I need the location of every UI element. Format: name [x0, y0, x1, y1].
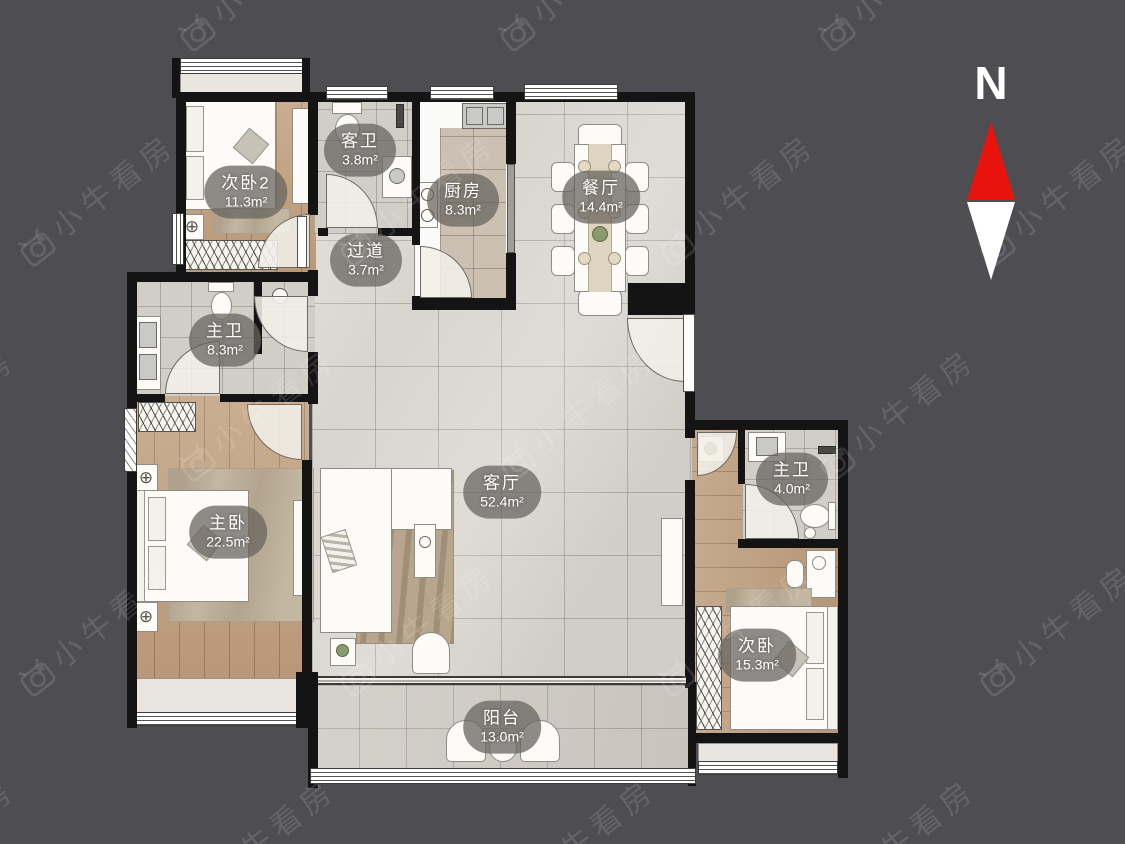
window-bedroom2-left	[172, 213, 184, 265]
room-area: 52.4m²	[480, 494, 524, 512]
watermark-item: 小牛看房	[807, 766, 985, 844]
target-glyph: ⊕	[139, 468, 153, 488]
watermark-item: 小牛看房	[967, 551, 1125, 703]
nightstand: ⊕	[134, 464, 158, 492]
window-master-left	[124, 408, 137, 472]
watermark-item: 小牛看房	[167, 0, 345, 58]
plate	[608, 252, 621, 265]
camera-logo-icon	[12, 223, 63, 274]
table-decor	[419, 536, 431, 548]
door-leaf-entry	[683, 314, 695, 392]
floorplan-screenshot: ⊕ ⊕ ⊕	[0, 0, 1125, 844]
watermark-item: 小牛看房	[0, 336, 24, 488]
wall-segment	[127, 272, 137, 728]
room-label-bedroom2: 次卧2 11.3m²	[204, 166, 287, 219]
wall-segment	[302, 58, 310, 98]
master-bed-pillow	[148, 546, 166, 590]
door-leaf-bedroom2	[297, 216, 307, 268]
plant	[336, 644, 349, 657]
room-name: 次卧	[735, 636, 779, 657]
watermark-item: 小牛看房	[0, 0, 24, 58]
room-name: 厨房	[444, 181, 482, 202]
wall-segment	[838, 420, 848, 778]
watermark-text: 小牛看房	[1001, 551, 1125, 677]
wall-segment	[172, 58, 180, 98]
room-area: 8.3m²	[206, 342, 244, 360]
room-label-guest-bath: 客卫 3.8m²	[324, 124, 396, 177]
dining-chair	[551, 246, 575, 276]
bed-right-headboard	[827, 606, 838, 730]
watermark-item: 小牛看房	[487, 0, 665, 58]
watermark-text: 小牛看房	[841, 766, 985, 844]
room-area: 13.0m²	[480, 729, 524, 747]
wall-segment	[685, 92, 695, 283]
vanity-sink	[139, 354, 157, 380]
watermark-text: 小牛看房	[0, 766, 24, 844]
bay-window-sill-master	[135, 678, 297, 714]
room-name: 客厅	[480, 473, 524, 494]
watermark-text: 小牛看房	[681, 121, 825, 247]
wall-segment	[220, 394, 312, 402]
coffee-table	[414, 524, 436, 578]
camera-logo-icon	[972, 653, 1023, 704]
room-label-dining: 餐厅 14.4m²	[562, 171, 640, 224]
compass-label: N	[951, 60, 1031, 106]
shower-fixture	[396, 104, 404, 128]
entry-cabinet	[661, 518, 683, 606]
room-label-living: 客厅 52.4m²	[463, 466, 541, 519]
master-dresser	[138, 402, 196, 432]
window-dining	[524, 84, 618, 100]
wall-segment	[318, 228, 328, 236]
toilet-bowl	[800, 504, 830, 528]
dining-chair	[578, 290, 622, 316]
bay-window-glass-bedroom2	[180, 58, 304, 74]
room-name: 过道	[347, 241, 385, 262]
wall-segment	[688, 733, 840, 743]
dining-chair	[625, 246, 649, 276]
master-bed-pillow	[148, 497, 166, 541]
camera-logo-icon	[12, 653, 63, 704]
wall-segment	[412, 298, 516, 310]
toilet-tank	[208, 282, 234, 292]
wall-segment	[176, 92, 318, 102]
room-name: 主卫	[773, 460, 811, 481]
centerpiece-plant	[592, 226, 608, 242]
target-glyph: ⊕	[139, 607, 153, 627]
room-name: 主卫	[206, 321, 244, 342]
wall-segment	[685, 388, 695, 438]
bed2-pillow	[186, 106, 204, 152]
bed2-pillow	[186, 156, 204, 200]
room-label-master-bedroom: 主卧 22.5m²	[189, 506, 267, 559]
watermark-text: 小牛看房	[41, 121, 185, 247]
watermark-item: 小牛看房	[7, 121, 185, 273]
wall-segment	[506, 92, 516, 164]
watermark-text: 小牛看房	[201, 0, 345, 32]
kitchen-sink-bowl	[466, 107, 483, 125]
watermark-text: 小牛看房	[841, 336, 985, 462]
guest-bath-sink	[389, 168, 405, 184]
toilet-tank	[332, 102, 362, 114]
room-label-kitchen: 厨房 8.3m²	[427, 174, 499, 227]
room-name: 客卫	[341, 131, 379, 152]
watermark-item: 小牛看房	[0, 766, 24, 844]
room-area: 4.0m²	[773, 481, 811, 499]
room-area: 14.4m²	[579, 199, 623, 217]
room-area: 3.7m²	[347, 262, 385, 280]
bed-right-pillow	[806, 668, 824, 720]
wall-segment	[506, 253, 516, 310]
desk-lamp	[812, 556, 826, 570]
room-label-master-bath-left: 主卫 8.3m²	[189, 314, 261, 367]
wall-segment	[308, 92, 318, 215]
balcony-railing-window	[310, 768, 696, 784]
room-label-master-bath-right: 主卫 4.0m²	[756, 453, 828, 506]
compass-north: N	[951, 60, 1031, 284]
wall-segment	[127, 394, 165, 402]
camera-logo-icon	[492, 8, 543, 59]
compass-arrow-icon	[965, 118, 1017, 284]
bay-window-glass-bedroom-right	[698, 761, 838, 775]
balcony-sliding-door	[318, 676, 686, 685]
watermark-item: 小牛看房	[807, 0, 985, 58]
wall-segment	[302, 460, 312, 682]
vanity-sink	[139, 322, 157, 348]
kitchen-sliding-door	[507, 164, 515, 253]
wall-segment	[695, 420, 845, 430]
wall-segment	[296, 672, 308, 728]
room-area: 3.8m²	[341, 152, 379, 170]
kitchen-sink	[462, 103, 508, 129]
target-glyph: ⊕	[185, 217, 199, 237]
lounge-chair	[412, 632, 450, 674]
desk-chair	[786, 560, 804, 588]
floor-drain	[804, 527, 816, 539]
bay-window-glass-master	[135, 712, 297, 726]
room-area: 15.3m²	[735, 657, 779, 675]
watermark-text: 小牛看房	[0, 336, 24, 462]
camera-logo-icon	[172, 8, 223, 59]
wall-segment	[412, 92, 420, 245]
wall-segment	[738, 539, 845, 548]
window-kitchen	[430, 86, 494, 100]
nightstand: ⊕	[134, 602, 158, 632]
watermark-text: 小牛看房	[521, 0, 665, 32]
room-name: 次卧2	[221, 173, 270, 194]
bay-window-sill-bedroom-right	[698, 743, 838, 763]
watermark-text: 小牛看房	[0, 0, 24, 32]
room-name: 主卧	[206, 513, 250, 534]
room-label-bedroom-right: 次卧 15.3m²	[718, 629, 796, 682]
watermark-text: 小牛看房	[841, 0, 985, 32]
toilet-tank	[828, 502, 836, 530]
room-area: 22.5m²	[206, 534, 250, 552]
window-guest-bath	[326, 86, 388, 100]
wall-segment	[127, 272, 317, 282]
room-name: 餐厅	[579, 178, 623, 199]
room-name: 阳台	[480, 708, 524, 729]
room-label-hallway: 过道 3.7m²	[330, 234, 402, 287]
room-area: 8.3m²	[444, 202, 482, 220]
camera-logo-icon	[812, 8, 863, 59]
bedroom-right-wardrobe	[696, 606, 722, 730]
kitchen-sink-bowl	[487, 107, 504, 125]
shower-fixture	[818, 446, 836, 454]
room-area: 11.3m²	[221, 194, 270, 212]
plate	[578, 252, 591, 265]
wall-segment	[738, 430, 745, 484]
room-label-balcony: 阳台 13.0m²	[463, 701, 541, 754]
wall-segment	[685, 283, 695, 318]
wall-segment	[685, 480, 695, 688]
